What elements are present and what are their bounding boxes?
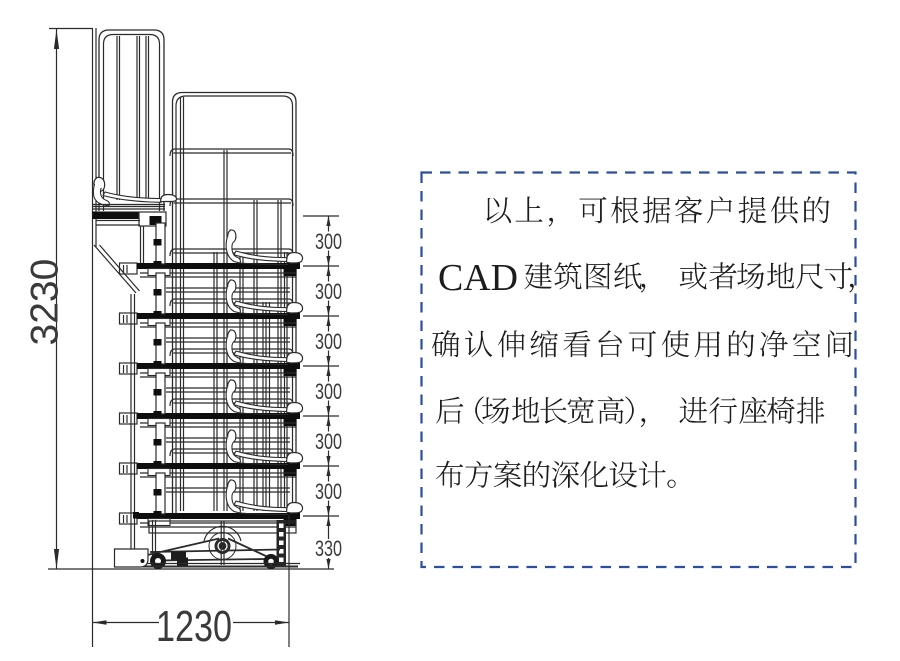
svg-text:300: 300 <box>315 279 342 304</box>
svg-text:3230: 3230 <box>24 259 67 346</box>
svg-text:330: 330 <box>315 536 342 561</box>
svg-text:1230: 1230 <box>156 602 232 651</box>
svg-text:300: 300 <box>315 229 342 254</box>
svg-text:300: 300 <box>315 429 342 454</box>
svg-text:300: 300 <box>315 479 342 504</box>
svg-text:300: 300 <box>315 379 342 404</box>
svg-text:CAD: CAD <box>438 257 518 299</box>
svg-text:300: 300 <box>315 329 342 354</box>
